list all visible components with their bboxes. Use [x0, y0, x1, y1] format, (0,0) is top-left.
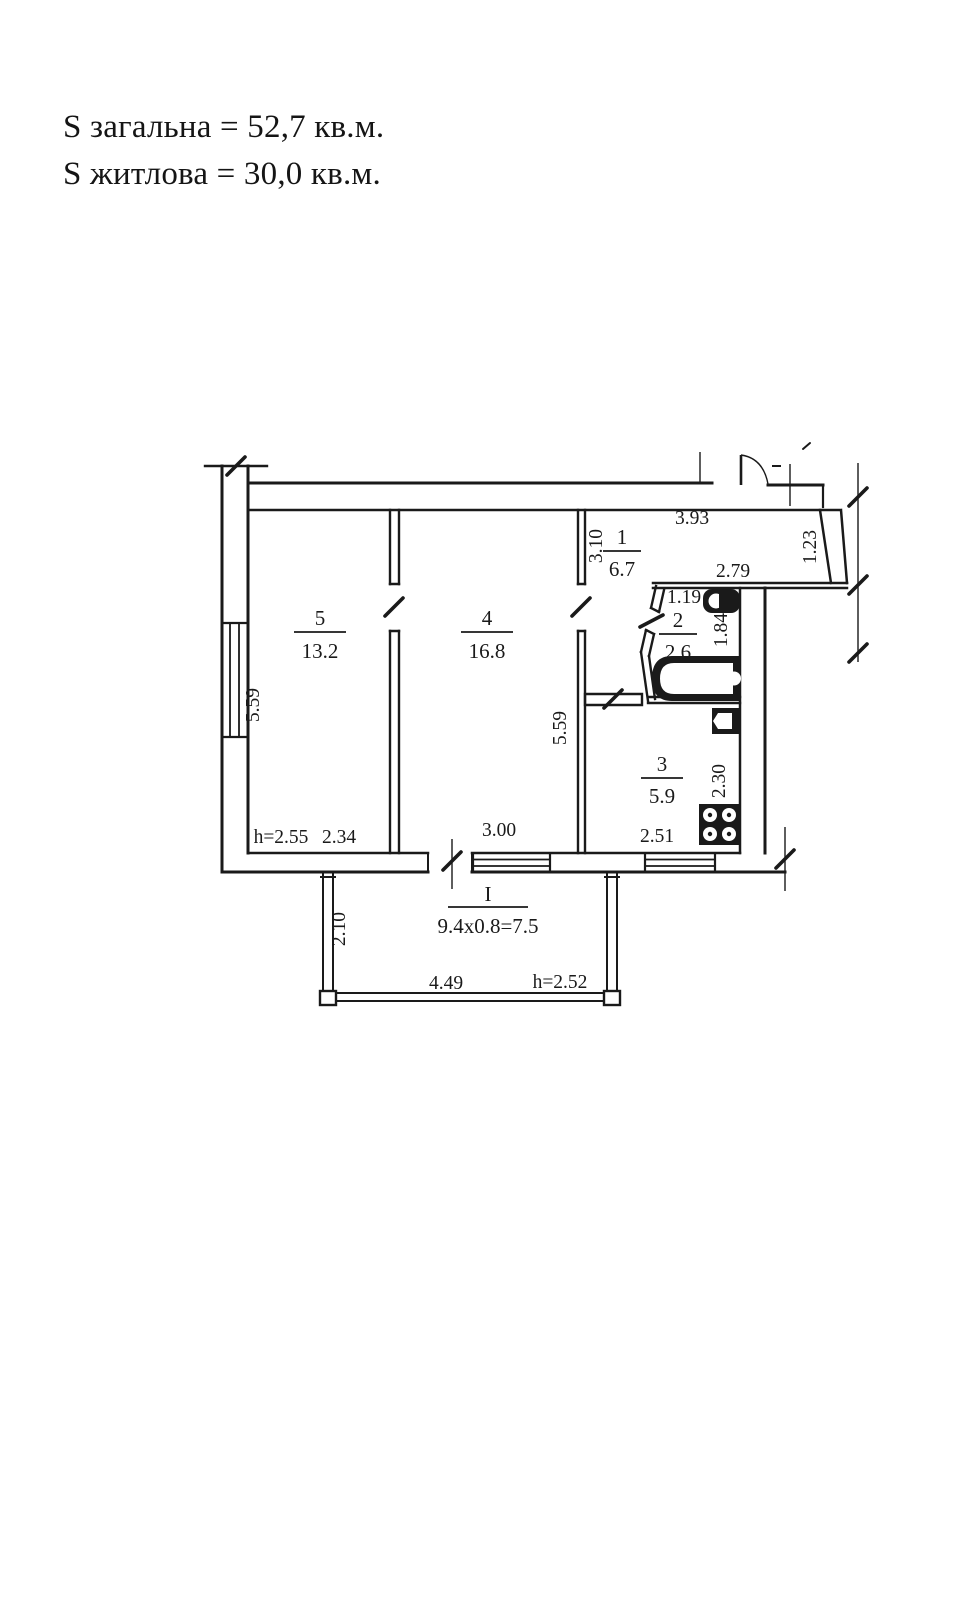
balcony-area: 9.4x0.8=7.5: [437, 914, 538, 938]
outer-walls: [205, 466, 847, 872]
room-5-area: 13.2: [302, 639, 339, 663]
balcony-number: I: [485, 882, 492, 906]
dim-hall-width: 3.93: [675, 508, 709, 529]
room-4-area: 16.8: [469, 639, 506, 663]
dim-room4-depth: 5.59: [550, 711, 571, 745]
room-1-number: 1: [617, 525, 628, 549]
window-room4-balcony: [473, 853, 550, 872]
room-2-number: 2: [673, 608, 684, 632]
dim-balcony-height: h=2.52: [533, 972, 588, 993]
room-label-1: 1 6.7: [603, 525, 641, 581]
room-label-5: 5 13.2: [294, 606, 346, 663]
room-label-balcony: I 9.4x0.8=7.5: [437, 882, 538, 938]
dim-bath-wall: 2.79: [716, 561, 750, 582]
dim-kitchen-depth: 2.30: [709, 764, 730, 798]
dim-room4-width: 3.00: [482, 820, 516, 841]
dim-balcony-width: 4.49: [429, 973, 463, 994]
floor-plan-page: S загальна = 52,7 кв.м. S житлова = 30,0…: [0, 0, 978, 1599]
room-label-3: 3 5.9: [641, 752, 683, 808]
room-5-number: 5: [315, 606, 326, 630]
toilet-icon: [703, 589, 740, 613]
dim-kitchen-width: 2.51: [640, 826, 674, 847]
room-4-number: 4: [482, 606, 493, 630]
dim-room5-height: h=2.55: [254, 827, 309, 848]
dim-bath-depth: 1.84: [711, 613, 732, 647]
room-label-4: 4 16.8: [461, 606, 513, 663]
room-1-area: 6.7: [609, 557, 635, 581]
room-2-area: 2.6: [665, 640, 691, 664]
entrance-door: [741, 455, 781, 485]
dim-bath-width: 1.19: [667, 587, 701, 608]
room-3-area: 5.9: [649, 784, 675, 808]
dim-room5-width: 2.34: [322, 827, 356, 848]
sink-icon: [712, 708, 740, 734]
dim-balcony-depth: 2.10: [329, 912, 350, 946]
dim-entry-side: 1.23: [800, 530, 821, 564]
floor-plan-drawing: 5 13.2 4 16.8 1 6.7 2 2.6 3 5.9 I 9.4x0.…: [0, 0, 978, 1599]
stove-icon: [699, 804, 740, 845]
dim-hall-depth: 3.10: [586, 529, 607, 563]
room-3-number: 3: [657, 752, 668, 776]
window-kitchen: [645, 853, 715, 872]
dim-left-wall: 5.59: [243, 688, 264, 722]
room-label-2: 2 2.6: [659, 608, 697, 664]
